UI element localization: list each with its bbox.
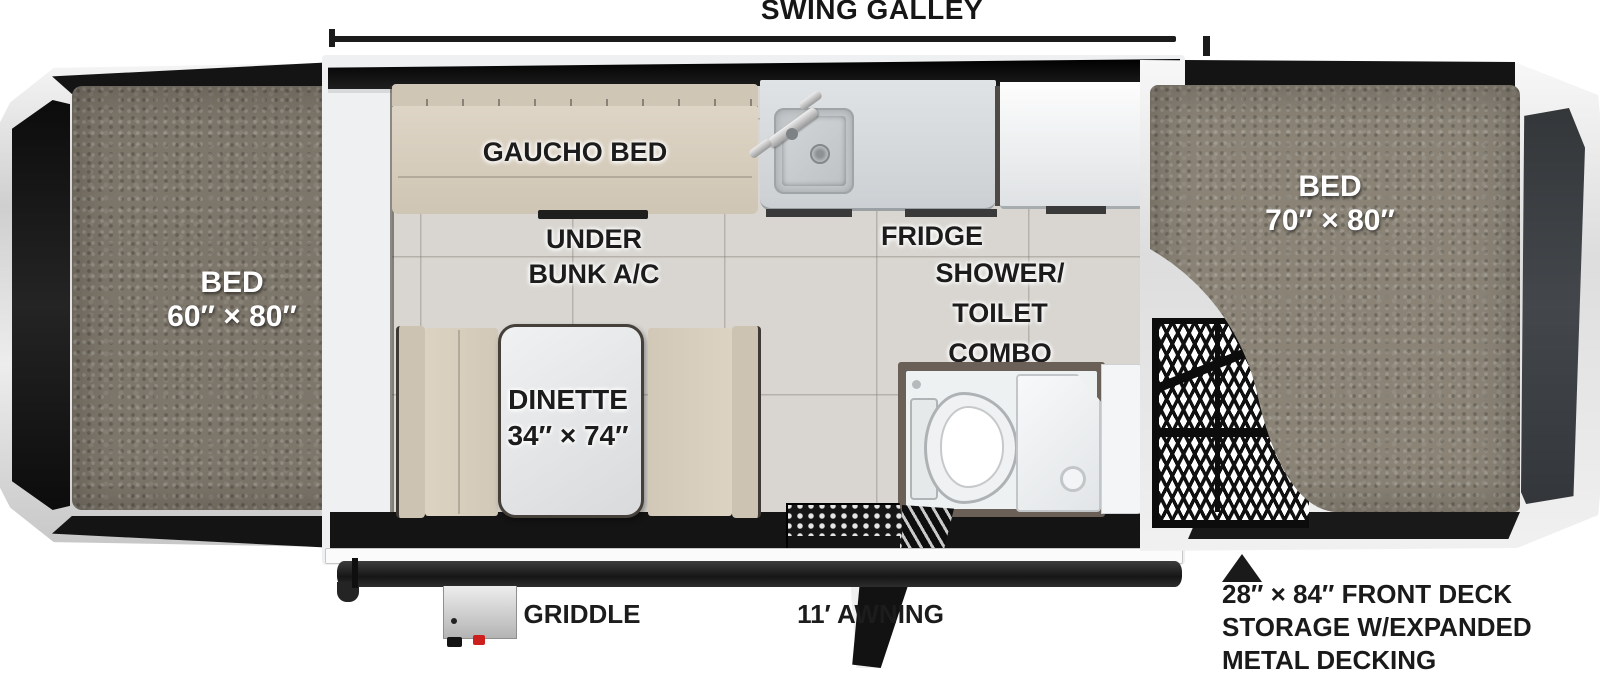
front-deck-line3: METAL DECKING	[1222, 644, 1562, 677]
dinette-label-line2: 34″ × 74″	[468, 418, 668, 454]
rail-end-right	[1203, 36, 1210, 56]
griddle-appliance	[443, 586, 517, 639]
dinette-bench-back-left	[396, 326, 425, 518]
shower-drain-icon	[1060, 466, 1086, 492]
swing-galley-rail	[332, 36, 1176, 42]
right-bed-label-line1: BED	[1230, 170, 1430, 204]
awning-pin	[352, 558, 358, 588]
dinette-label-line1: DINETTE	[468, 382, 668, 418]
griddle-knob	[473, 635, 485, 645]
shower-label-line2: TOILET	[905, 293, 1095, 333]
under-bunk-ac-label: UNDER BUNK A/C	[494, 222, 694, 292]
right-bed-label: BED 70″ × 80″	[1230, 170, 1430, 238]
shower-pan	[1016, 374, 1101, 512]
right-bed-label-line2: 70″ × 80″	[1230, 204, 1430, 238]
left-bed-label-line1: BED	[132, 266, 332, 300]
gaucho-bed-backrest	[392, 84, 758, 108]
dinette-bench-back-right	[732, 326, 761, 518]
awning-label: 11′ AWNING	[788, 599, 953, 630]
left-tent-side-panel	[12, 100, 70, 510]
dinette-label: DINETTE 34″ × 74″	[468, 382, 668, 454]
rail-end-left	[329, 29, 335, 47]
sink-drain-icon	[810, 144, 830, 164]
griddle-foot	[447, 637, 462, 647]
front-deck-label: 28″ × 84″ FRONT DECK STORAGE W/EXPANDED …	[1222, 578, 1562, 677]
fridge-label: FRIDGE	[852, 221, 1012, 252]
awning-roller	[337, 561, 1182, 587]
left-bed-label-line2: 60″ × 80″	[132, 300, 332, 334]
floorplan-canvas: SWING GALLEY BED 60″ × 80″ GAUCHO BED UN…	[0, 0, 1600, 677]
shower-label-line1: SHOWER/	[905, 253, 1095, 293]
griddle-label: GRIDDLE	[512, 599, 652, 630]
faucet-knob	[786, 128, 798, 140]
shower-fixture-dot	[912, 380, 921, 389]
front-deck-line1: 28″ × 84″ FRONT DECK	[1222, 578, 1562, 611]
front-deck-line2: STORAGE W/EXPANDED	[1222, 611, 1562, 644]
gaucho-bed-label: GAUCHO BED	[455, 137, 695, 168]
fridge-cabinet-hardware	[1046, 206, 1106, 214]
under-bunk-ac-vent	[538, 210, 648, 219]
left-bed-label: BED 60″ × 80″	[132, 266, 332, 334]
gaucho-bed-seam	[398, 176, 752, 178]
mesh-frame-bar-vertical	[1215, 322, 1220, 512]
counter-hardware-right	[905, 209, 997, 217]
under-bunk-ac-line2: BUNK A/C	[494, 257, 694, 292]
swing-galley-label: SWING GALLEY	[712, 0, 1032, 26]
counter-hardware-left	[766, 209, 852, 217]
dinette-bench-seam	[458, 330, 460, 514]
fridge-cabinet	[1000, 82, 1143, 209]
griddle-screw-dot	[451, 618, 457, 624]
shower-toilet-combo-label: SHOWER/ TOILET COMBO	[905, 253, 1095, 373]
under-bunk-ac-line1: UNDER	[494, 222, 694, 257]
